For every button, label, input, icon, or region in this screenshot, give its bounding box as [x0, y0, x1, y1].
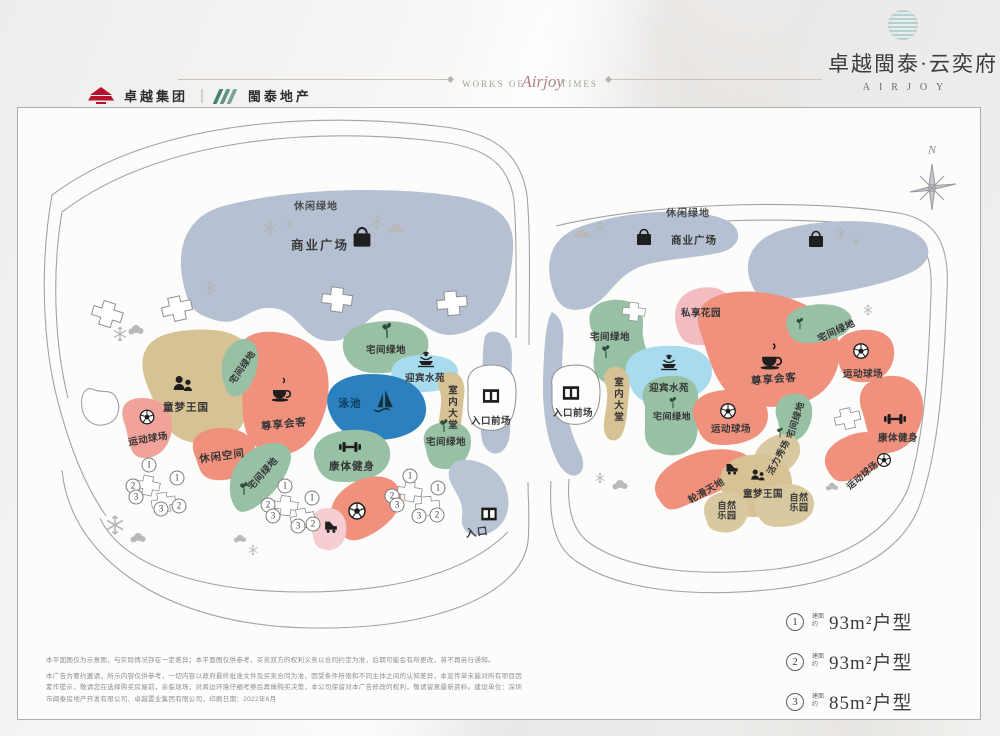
- unit-number-badge: 3: [266, 509, 281, 524]
- apple-outline: [82, 389, 119, 425]
- soccer-ball-icon: [140, 410, 154, 424]
- legend-number-badge: 1: [786, 613, 804, 631]
- zone-fitness: [314, 430, 390, 482]
- disclaimer: 本平面图仅为示意图，与实际情况存在一定差异；本平面图仅供参考，买卖双方的权利义务…: [46, 655, 524, 710]
- legend-unit-label: 93m²户型: [829, 608, 912, 635]
- disclaimer-line-1: 本平面图仅为示意图，与实际情况存在一定差异；本平面图仅供参考，买卖双方的权利义务…: [46, 655, 524, 667]
- zone-label-home-green: 宅间绿地: [590, 329, 630, 343]
- unit-number-badge: 1: [305, 491, 320, 506]
- gate-icon: [563, 386, 579, 400]
- soccer-ball-icon: [349, 503, 365, 519]
- zone-label-home-green: 宅间绿地: [426, 434, 466, 448]
- gate-icon: [481, 508, 496, 521]
- zone-label-kids-kingdom: 童梦王国: [743, 486, 783, 500]
- zone-label-sports-court: 运动球场: [843, 366, 883, 380]
- unit-type-legend: 1 建面约 93m²户型 2 建面约 93m²户型 3 建面约 85m²户型: [786, 608, 912, 728]
- zone-label-entrance-plaza: 入口前场: [553, 405, 593, 419]
- zone-label-indoor-lobby: 室内大堂: [610, 377, 624, 423]
- unit-number-badge: 1: [431, 481, 446, 496]
- zone-label-indoor-lobby: 室内大堂: [444, 385, 458, 431]
- zone-label-fitness: 康体健身: [329, 459, 375, 474]
- legend-item: 1 建面约 93m²户型: [786, 608, 912, 635]
- zone-label-entrance: 入口: [465, 523, 490, 541]
- unit-number-badge: 3: [390, 498, 405, 513]
- zone-commercial-plaza: [748, 221, 929, 299]
- unit-number-badge: 3: [291, 519, 306, 534]
- gate-icon: [483, 389, 499, 403]
- unit-number-badge: 1: [403, 469, 418, 484]
- zone-label-leisure-green: 休闲绿地: [666, 205, 710, 220]
- disclaimer-line-2: 本广告为要约邀请，所示内容仅供参考，一切内容以政府最终批准文件及买卖合同为准，因…: [46, 671, 524, 706]
- legend-number-badge: 3: [786, 693, 804, 711]
- zone-label-private-garden: 私享花园: [681, 305, 721, 319]
- zone-label-nature-park: 自然 乐园: [717, 501, 736, 522]
- legend-item: 3 建面约 85m²户型: [786, 688, 912, 715]
- soccer-ball-icon: [854, 344, 868, 358]
- unit-number-badge: 1: [142, 458, 157, 473]
- zone-label-home-green: 宅间绿地: [366, 342, 406, 356]
- unit-number-badge: 1: [170, 471, 185, 486]
- legend-unit-label: 93m²户型: [829, 648, 912, 675]
- unit-number-badge: 3: [412, 509, 427, 524]
- poster-page: { "header": { "logo_left_primary": "卓越集团…: [0, 0, 1000, 736]
- zone-label-sports-court: 运动球场: [711, 421, 751, 435]
- legend-item: 2 建面约 93m²户型: [786, 648, 912, 675]
- zone-label-pool: 泳池: [339, 396, 362, 411]
- zone-label-kids-kingdom: 童梦王国: [163, 400, 209, 415]
- soccer-ball-icon: [878, 454, 891, 467]
- legend-area-prefix: 建面约: [812, 614, 826, 628]
- zone-label-commercial-plaza: 商业广场: [291, 235, 349, 254]
- compass-icon: [910, 164, 956, 210]
- unit-number-badge: 1: [278, 479, 293, 494]
- zone-label-welcome-water: 迎宾水苑: [649, 380, 689, 394]
- unit-number-badge: 2: [306, 517, 321, 532]
- zone-label-welcome-water: 迎宾水苑: [405, 370, 445, 384]
- unit-number-badge: 2: [430, 508, 445, 523]
- legend-number-badge: 2: [786, 653, 804, 671]
- unit-number-badge: 2: [172, 499, 187, 514]
- zone-label-commercial-plaza: 商业广场: [671, 233, 717, 248]
- legend-unit-label: 85m²户型: [829, 688, 912, 715]
- zone-label-leisure-green: 休闲绿地: [294, 198, 338, 213]
- unit-number-badge: 3: [129, 490, 144, 505]
- zone-label-entrance-plaza: 入口前场: [471, 413, 511, 427]
- zone-label-home-green: 宅间绿地: [653, 410, 691, 423]
- unit-number-badge: 3: [154, 502, 169, 517]
- legend-area-prefix: 建面约: [812, 694, 826, 708]
- soccer-ball-icon: [721, 404, 735, 418]
- zone-commercial-plaza: [181, 190, 513, 341]
- legend-area-prefix: 建面约: [812, 654, 826, 668]
- zone-label-fitness: 康体健身: [878, 430, 918, 444]
- zone-label-nature-park: 自然 乐园: [789, 493, 808, 514]
- compass-north-label: N: [928, 143, 936, 158]
